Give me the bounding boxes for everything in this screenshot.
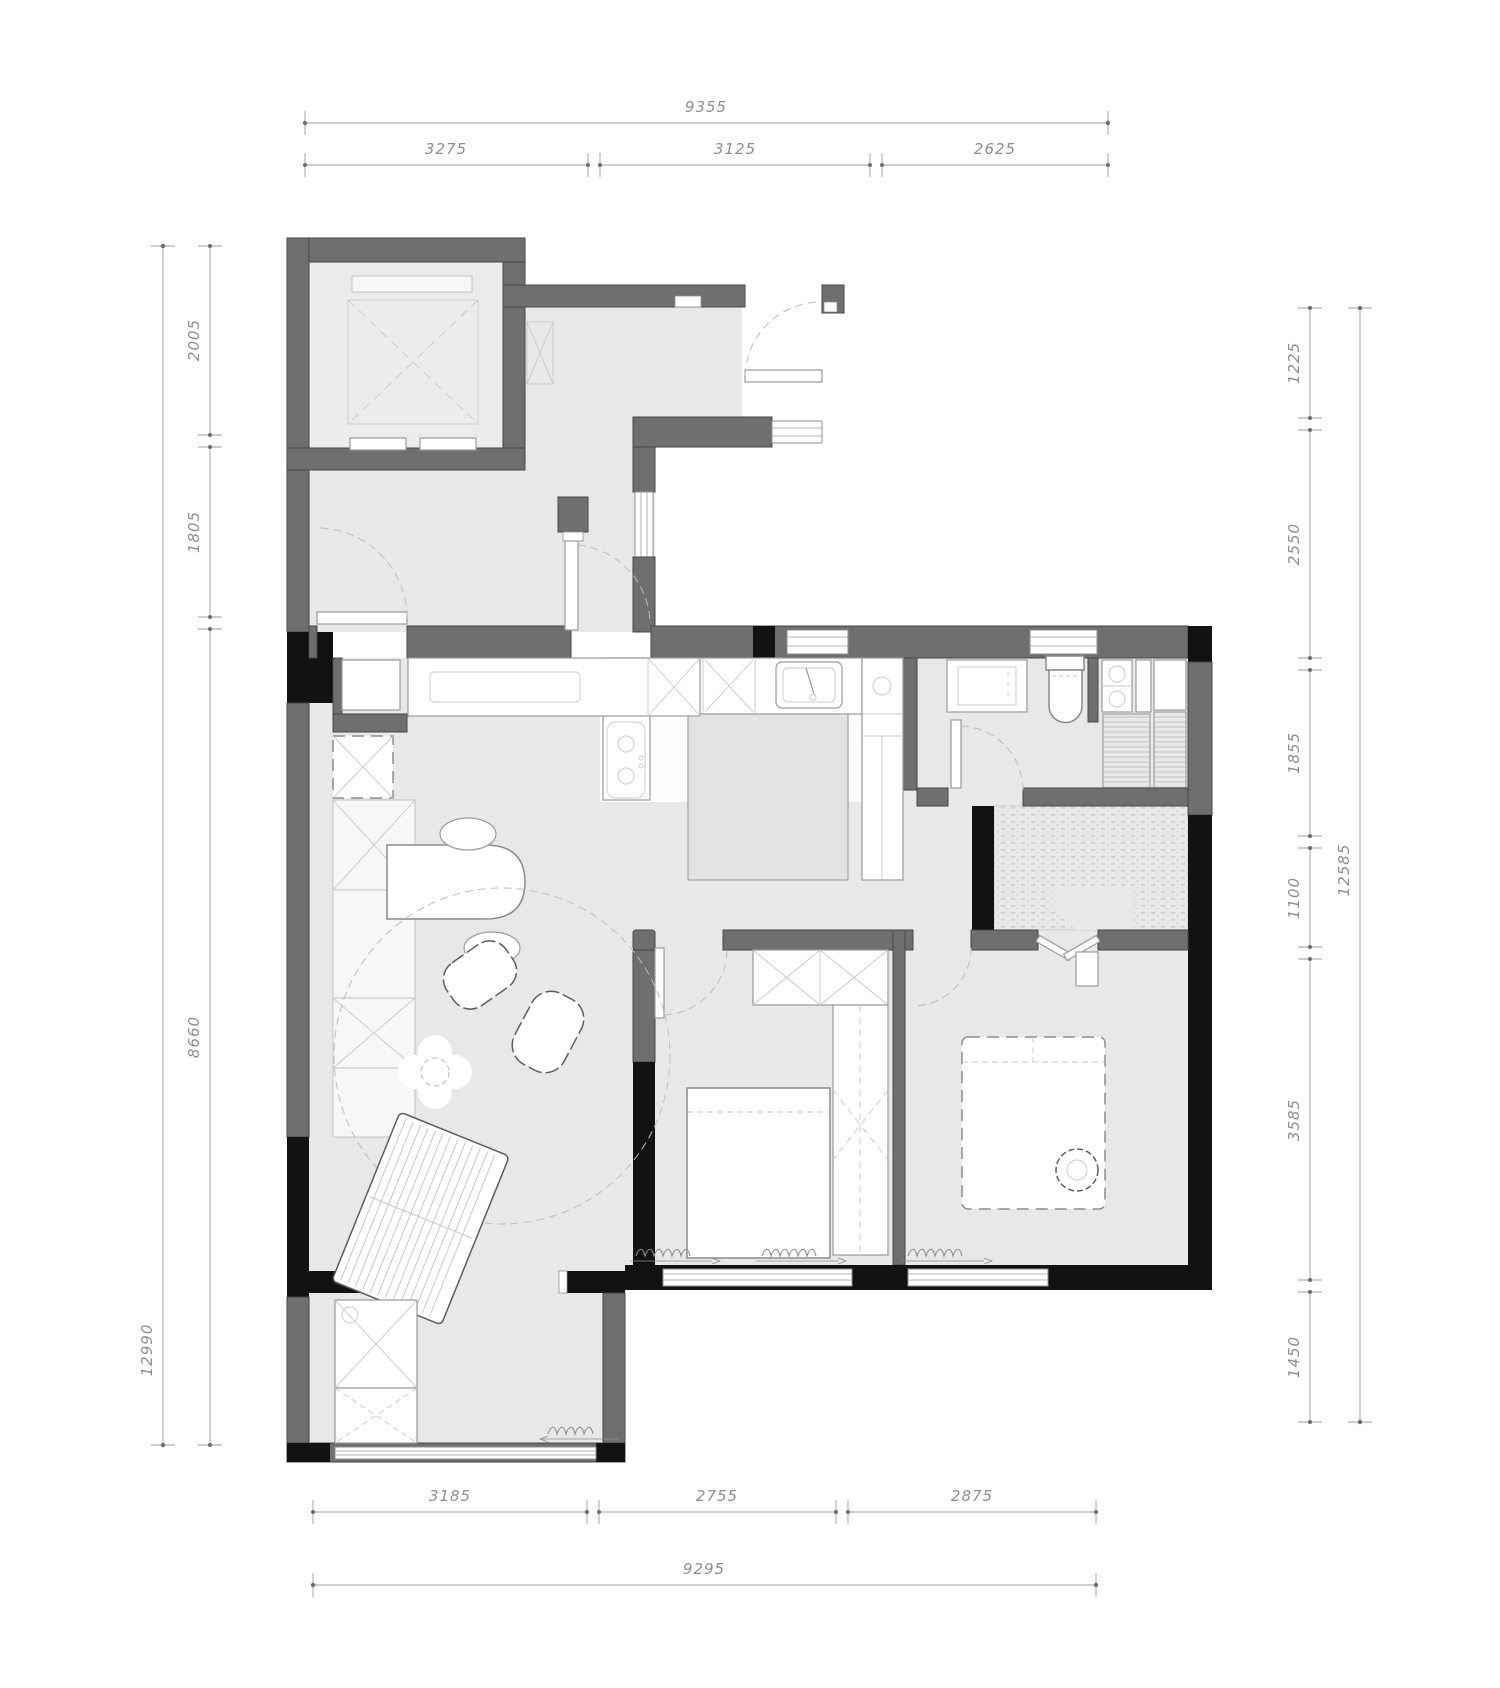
bedroom1-left-wall — [633, 950, 655, 1062]
elevator-wall-left — [287, 238, 309, 470]
dim-top-seg2: 3125 — [714, 140, 756, 158]
lightwell-wall-lower — [633, 557, 655, 632]
lightwell-window — [635, 492, 653, 557]
dim-right-overall: 12585 — [1335, 844, 1353, 897]
dim-right-seg1: 1225 — [1285, 342, 1303, 384]
desk — [387, 845, 525, 919]
entry-door-leaf — [745, 370, 822, 382]
toilet-bowl — [1049, 670, 1082, 723]
dim-bottom-seg3: 2875 — [951, 1487, 993, 1505]
bath-window — [1030, 630, 1097, 654]
dim-top-seg1: 3275 — [425, 140, 467, 158]
dim-right-seg3: 1855 — [1285, 732, 1303, 774]
dim-left-seg2: 1805 — [185, 511, 203, 553]
dim-left-seg1: 2005 — [185, 319, 203, 361]
toilet-tank — [1046, 656, 1084, 670]
bedroom1-top-wall — [723, 930, 893, 950]
bedroom1-bed — [687, 1088, 830, 1258]
lower-wall-stub-right — [567, 1271, 625, 1293]
dim-bottom-seg1: 3185 — [429, 1487, 471, 1505]
corner-black-column — [1188, 626, 1212, 662]
dim-bottom-overall: 9295 — [683, 1560, 725, 1578]
right-black-wall — [1188, 815, 1212, 1290]
niche-wall-bottom — [333, 714, 407, 732]
desk-chair-1 — [440, 818, 496, 850]
dim-top-seg3: 2625 — [974, 140, 1016, 158]
dim-top-overall: 9355 — [685, 98, 727, 116]
elevator-door-left — [350, 438, 406, 450]
kitchen-top-wall — [651, 626, 1188, 658]
bath-bottom-wall-right — [1023, 788, 1188, 806]
bedroom1-window — [663, 1269, 852, 1286]
left-black-wall — [287, 1137, 309, 1297]
washing-machine — [947, 660, 1027, 712]
lower-right-wall — [603, 1293, 625, 1443]
kitchen-tall-unit — [862, 658, 903, 880]
living-bottom-black-left — [287, 1443, 330, 1462]
niche-box — [342, 660, 400, 710]
elevator-wall-top — [287, 238, 525, 262]
living-bottom-black-right — [596, 1443, 625, 1462]
shower-tray — [1103, 714, 1150, 792]
bedroom1-wardrobe-top — [753, 950, 888, 1005]
kitchen-door-leaf — [565, 541, 578, 630]
living-window — [335, 1447, 596, 1459]
bath-tall-cabinet — [1154, 660, 1186, 710]
bedroom1-left-black — [633, 1062, 655, 1265]
kitchen-bath-divider — [903, 658, 917, 790]
kitchen-island — [688, 714, 848, 880]
bedroom2-jamb — [905, 930, 913, 950]
corridor-bottom-wall — [633, 417, 772, 447]
wall-notch — [675, 296, 701, 307]
elevator-door-right — [420, 438, 476, 450]
kitchen-door-stub — [558, 497, 588, 532]
closet-black-wall — [972, 806, 994, 930]
left-wall-hall — [287, 470, 309, 632]
bath-door-leaf — [951, 720, 961, 788]
left-wall-lower — [287, 1297, 309, 1462]
dim-right-seg2: 2550 — [1285, 523, 1303, 565]
entry-jamb — [824, 302, 837, 312]
dim-right-seg5: 3585 — [1285, 1099, 1303, 1141]
bedroom2-side-unit — [1076, 952, 1098, 986]
left-wall-living — [287, 703, 309, 1137]
kitchen-window — [787, 630, 848, 654]
kitchen-black-column — [753, 626, 775, 658]
corridor-top-wall — [503, 285, 745, 307]
bath-partition — [1088, 658, 1098, 722]
bath-bottom-wall-left — [917, 788, 948, 806]
dim-right-seg4: 1100 — [1285, 877, 1303, 919]
dim-bottom-seg2: 2755 — [696, 1487, 738, 1505]
towel-radiator — [1154, 712, 1186, 792]
corridor-window — [772, 421, 822, 443]
bedroom2-top-wall-right — [1098, 930, 1188, 950]
bedroom2-window — [908, 1269, 1048, 1286]
floor-plan-canvas: 9355 3275 3125 2625 3185 2755 2875 9295 … — [0, 0, 1500, 1688]
dim-left-overall: 12990 — [138, 1324, 156, 1377]
dim-left-seg3: 8660 — [185, 1016, 203, 1058]
bedroom1-door-jamb-wall — [633, 930, 655, 950]
bedroom-divider-wall — [893, 930, 905, 1265]
elevator-counterweight — [352, 276, 472, 292]
stub-jamb-right — [559, 1271, 567, 1293]
hall-door-leaf — [317, 612, 407, 624]
elevator-wall-bottom — [287, 448, 525, 470]
bath-shelf — [1136, 660, 1151, 712]
lightwell-wall-upper — [633, 447, 655, 492]
dim-right-seg6: 1450 — [1285, 1336, 1303, 1378]
bedroom1-wardrobe-side — [833, 1005, 888, 1255]
right-wall-upper — [1188, 662, 1212, 815]
bedroom2-plant — [1056, 1149, 1098, 1191]
hall-wall-stub — [309, 626, 317, 658]
hall-living-wall — [407, 626, 571, 658]
bedroom2-top-wall-left — [971, 930, 1038, 950]
floor-plan-drawing: 9355 3275 3125 2625 3185 2755 2875 9295 … — [0, 0, 1500, 1688]
entry-door-swing — [745, 302, 821, 376]
kitchen-door-jamb — [563, 532, 583, 541]
